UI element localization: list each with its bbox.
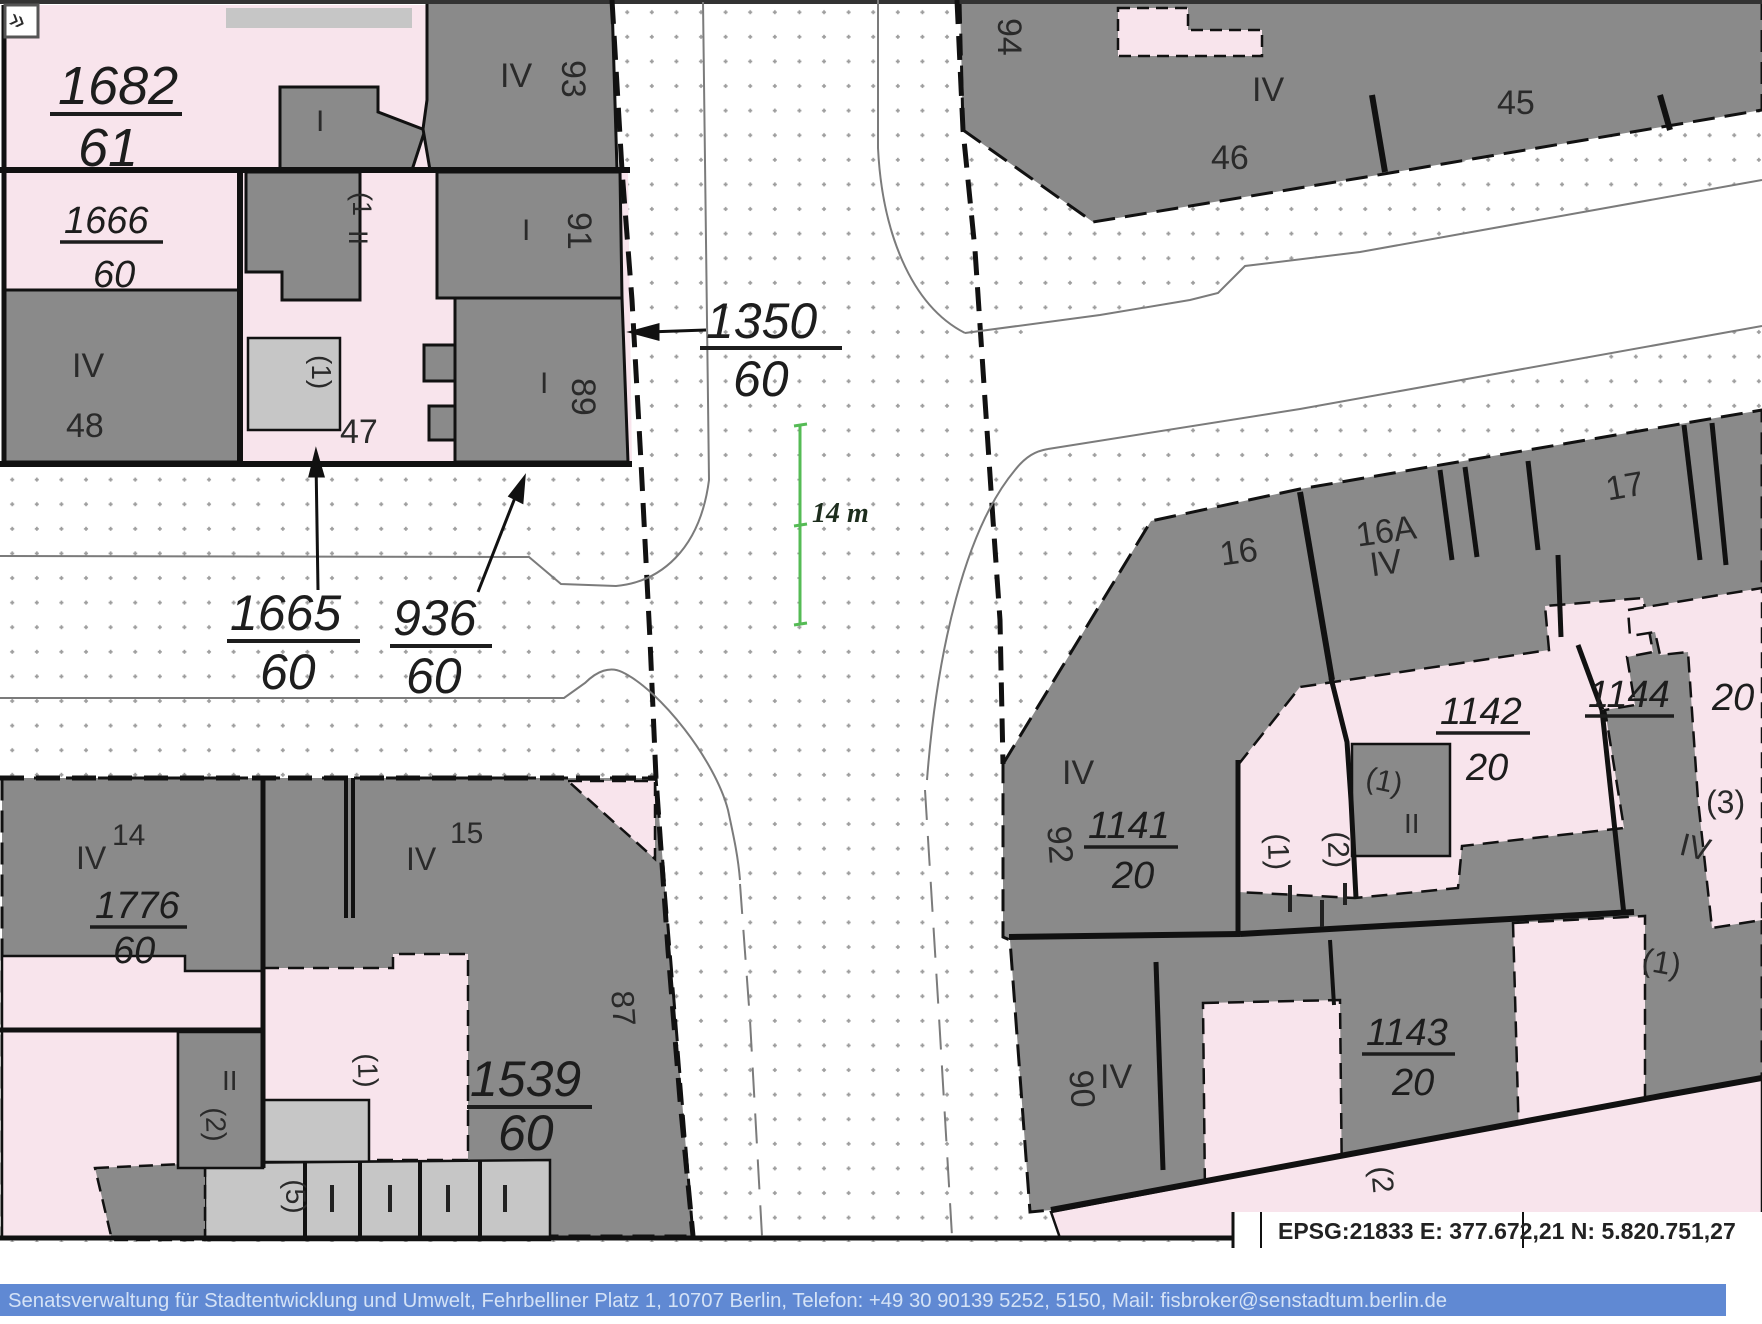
svg-text:IV: IV	[1367, 542, 1404, 584]
svg-text:87: 87	[604, 989, 642, 1027]
svg-text:(2): (2)	[200, 1107, 232, 1142]
svg-text:IV: IV	[500, 57, 532, 95]
svg-text:61: 61	[78, 118, 138, 178]
svg-text:15: 15	[450, 817, 483, 850]
svg-text:47: 47	[340, 413, 378, 451]
svg-text:46: 46	[1211, 139, 1249, 177]
svg-text:94: 94	[990, 18, 1028, 56]
svg-text:1776: 1776	[95, 885, 180, 927]
svg-text:60: 60	[260, 644, 316, 700]
svg-text:92: 92	[1039, 825, 1080, 865]
svg-text:1142: 1142	[1440, 691, 1522, 733]
svg-text:IV: IV	[1252, 71, 1284, 109]
svg-text:(3): (3)	[1706, 784, 1745, 820]
svg-text:60: 60	[113, 930, 155, 972]
svg-text:1350: 1350	[706, 293, 817, 349]
svg-text:(5): (5)	[280, 1179, 312, 1214]
svg-text:16: 16	[1217, 531, 1260, 574]
svg-text:60: 60	[93, 254, 135, 296]
svg-text:1539: 1539	[470, 1051, 581, 1107]
svg-text:45: 45	[1497, 84, 1535, 122]
svg-text:20: 20	[1711, 677, 1754, 719]
svg-text:89: 89	[564, 378, 602, 416]
svg-text:IV: IV	[406, 841, 437, 877]
svg-text:1682: 1682	[58, 56, 178, 116]
svg-text:48: 48	[66, 407, 104, 445]
svg-text:91: 91	[560, 212, 598, 250]
svg-text:II: II	[343, 230, 373, 245]
svg-text:936: 936	[393, 590, 477, 646]
svg-text:II: II	[1404, 808, 1420, 839]
svg-text:(1): (1)	[1261, 833, 1295, 871]
svg-text:60: 60	[406, 648, 462, 704]
svg-text:IV: IV	[76, 840, 107, 876]
svg-text:20: 20	[1111, 855, 1154, 897]
svg-text:(2: (2	[1364, 1165, 1399, 1194]
svg-text:I: I	[316, 105, 324, 138]
svg-text:I: I	[522, 214, 530, 247]
svg-text:20: 20	[1391, 1062, 1434, 1104]
svg-text:EPSG:21833 E: 377.672,21 N: 5.: EPSG:21833 E: 377.672,21 N: 5.820.751,27	[1278, 1218, 1736, 1244]
svg-text:II: II	[222, 1065, 238, 1096]
svg-text:IV: IV	[1100, 1058, 1132, 1096]
svg-text:(1): (1)	[306, 355, 337, 389]
svg-text:20: 20	[1465, 747, 1508, 789]
svg-text:1141: 1141	[1088, 805, 1170, 847]
svg-text:IV: IV	[1062, 754, 1094, 792]
svg-text:93: 93	[554, 60, 592, 98]
svg-text:60: 60	[498, 1105, 554, 1161]
svg-text:(1): (1)	[1639, 941, 1684, 983]
svg-text:17: 17	[1603, 465, 1647, 509]
svg-text:(1): (1)	[352, 1053, 384, 1088]
svg-text:Senatsverwaltung für Stadtentw: Senatsverwaltung für Stadtentwicklung un…	[8, 1290, 1447, 1312]
svg-text:60: 60	[733, 351, 789, 407]
svg-text:I: I	[540, 367, 548, 400]
svg-text:14: 14	[112, 819, 145, 852]
svg-text:1666: 1666	[64, 200, 149, 242]
svg-text:90: 90	[1061, 1069, 1102, 1109]
svg-text:1665: 1665	[230, 585, 341, 641]
svg-text:IV: IV	[72, 347, 104, 385]
svg-text:1144: 1144	[1588, 674, 1670, 716]
svg-text:(2): (2)	[1321, 831, 1355, 869]
svg-text:14 m: 14 m	[812, 498, 869, 529]
svg-text:(1: (1	[347, 192, 377, 216]
svg-text:1143: 1143	[1366, 1012, 1448, 1054]
